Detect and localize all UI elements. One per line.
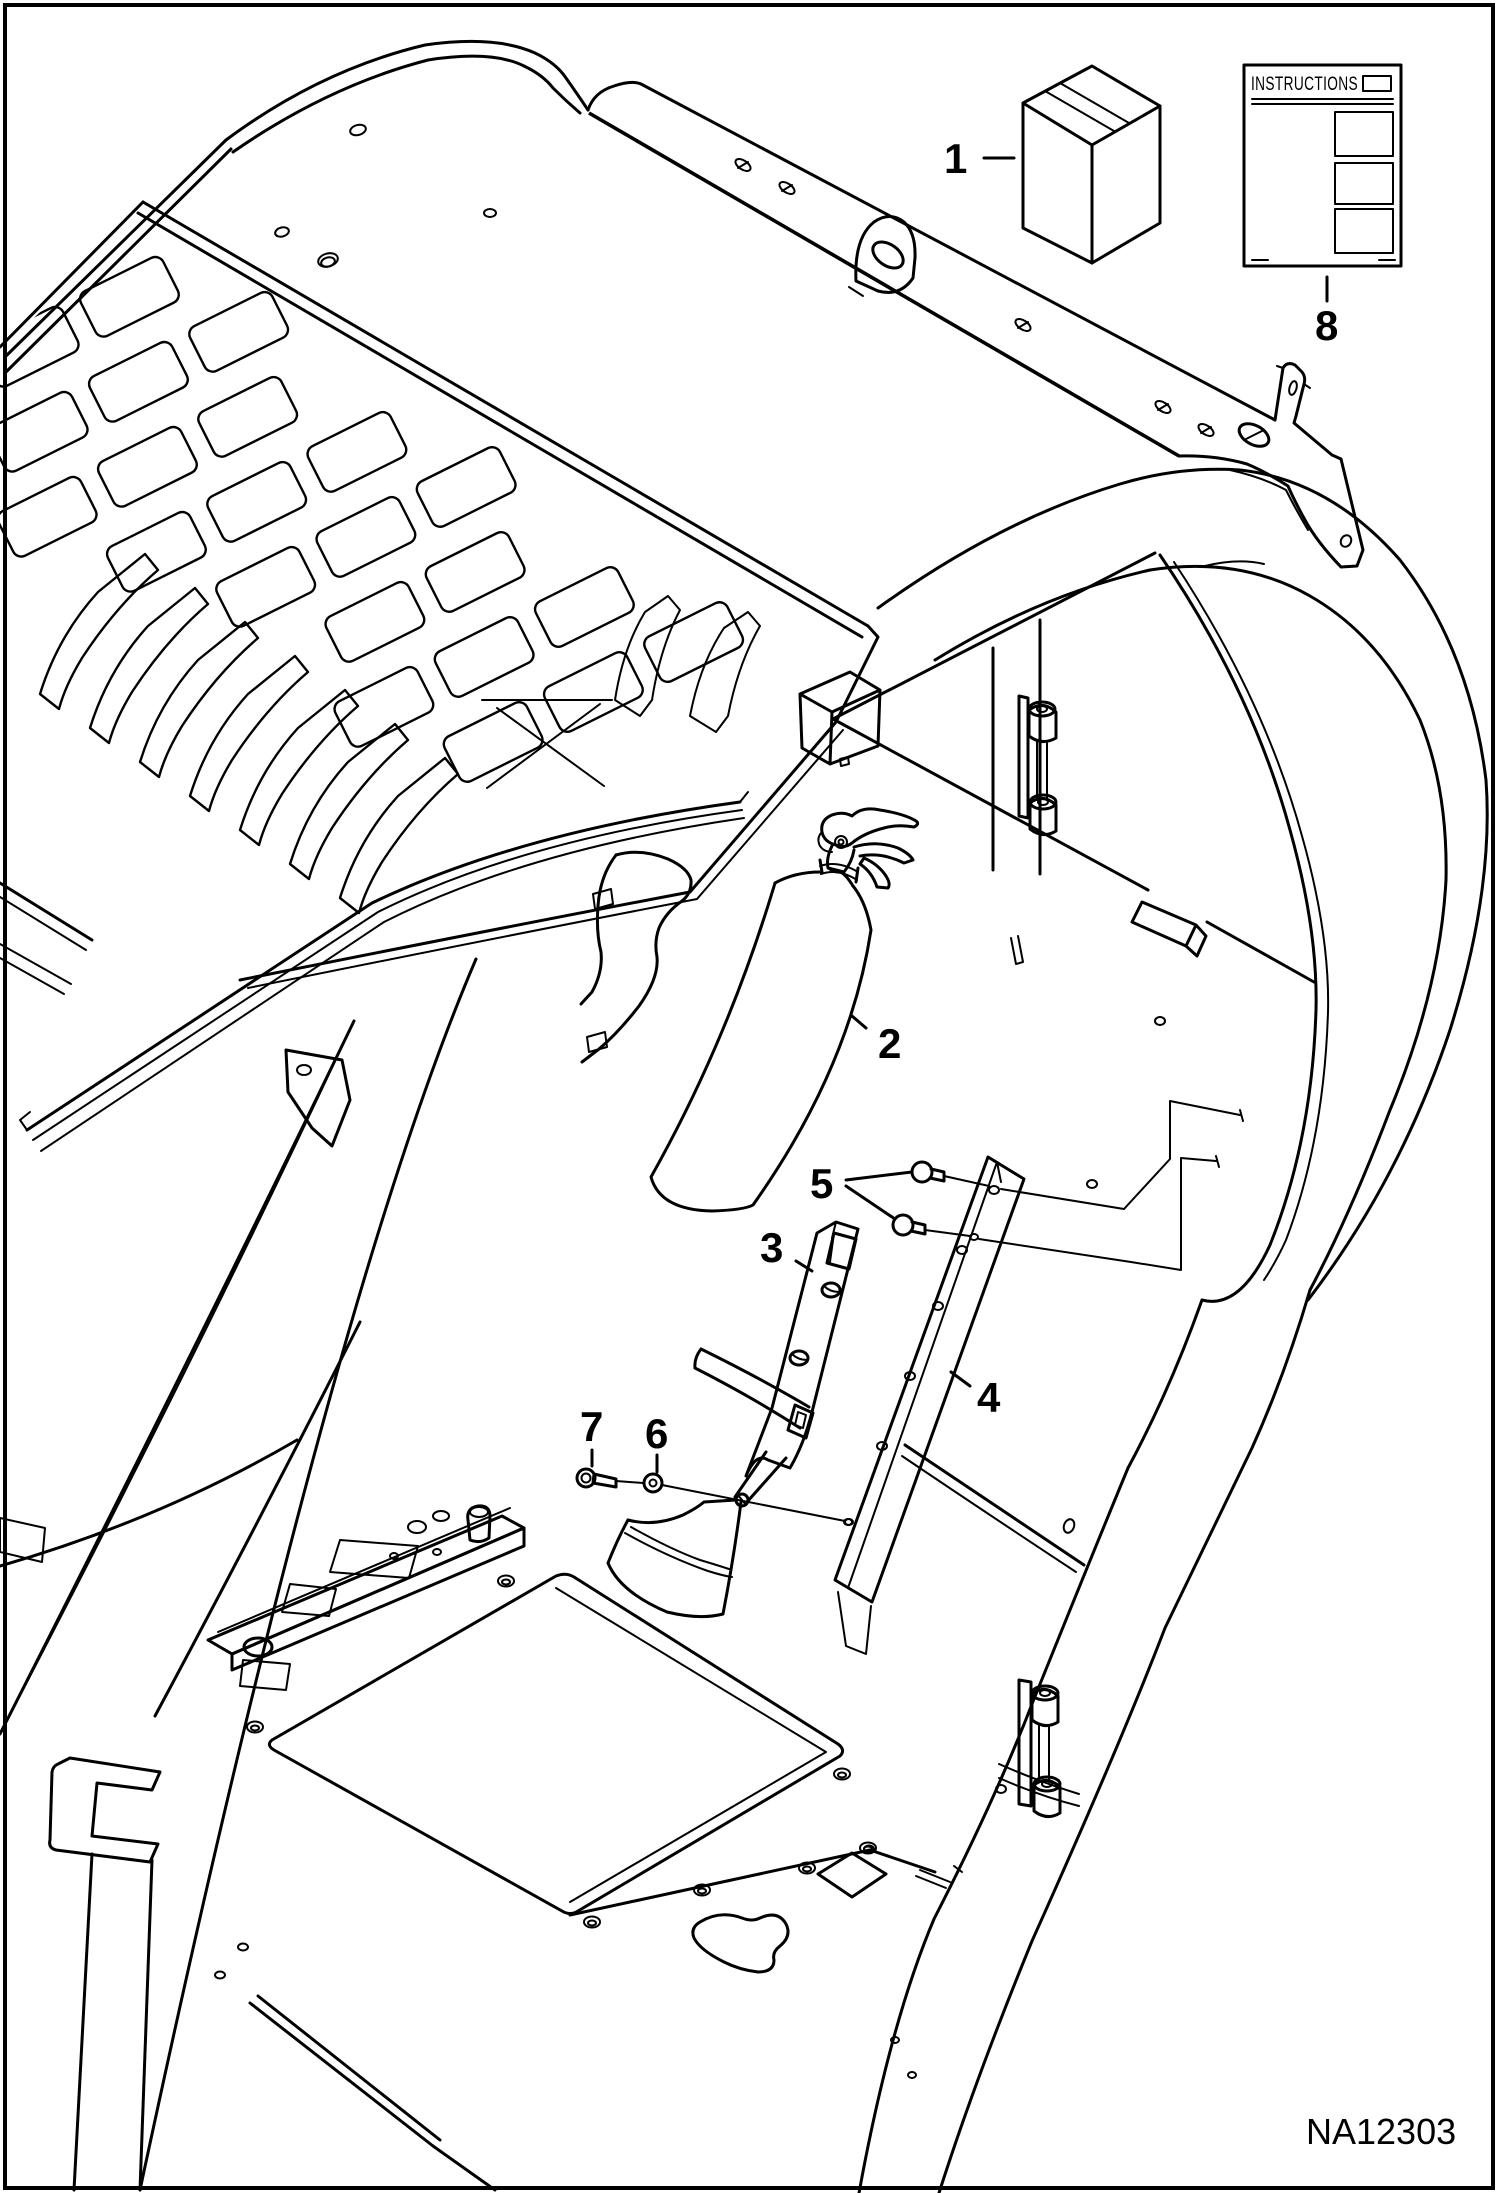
svg-text:1: 1: [944, 135, 967, 182]
svg-text:4: 4: [977, 1374, 1001, 1421]
svg-text:5: 5: [810, 1160, 833, 1207]
svg-text:NA12303: NA12303: [1306, 2111, 1456, 2152]
svg-text:8: 8: [1315, 302, 1338, 349]
svg-text:INSTRUCTIONS: INSTRUCTIONS: [1251, 74, 1358, 95]
svg-text:7: 7: [580, 1403, 603, 1450]
svg-text:3: 3: [760, 1224, 783, 1271]
svg-text:2: 2: [878, 1020, 901, 1067]
svg-text:6: 6: [645, 1410, 668, 1457]
